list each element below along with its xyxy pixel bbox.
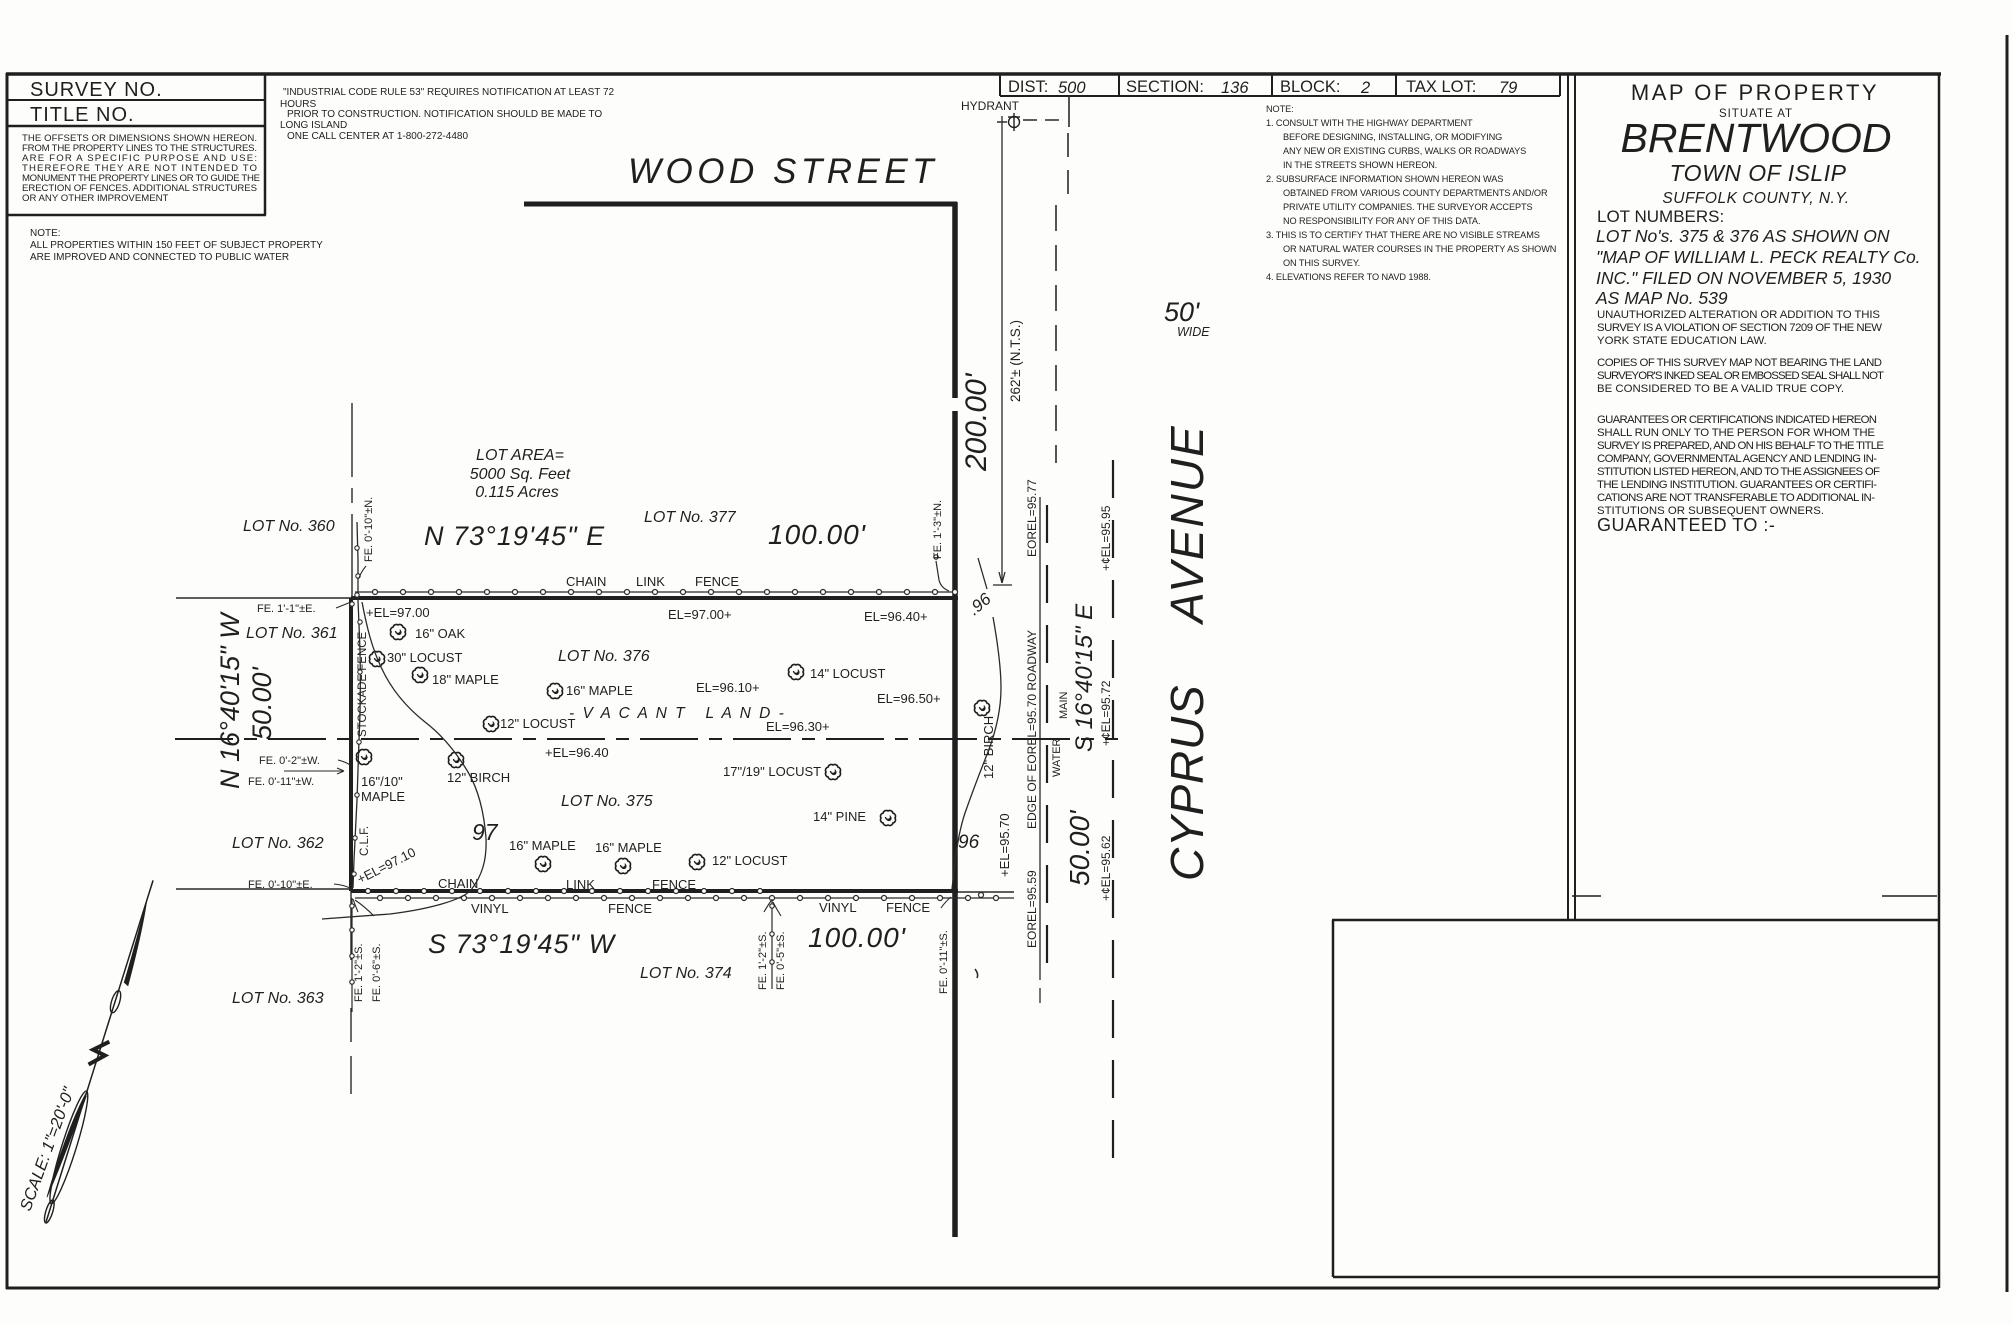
svg-text:FE. 0'-10"±N.: FE. 0'-10"±N. [363,497,375,562]
svg-text:MAIN: MAIN [1058,691,1070,719]
svg-text:14" LOCUST: 14" LOCUST [810,666,885,681]
svg-text:SUFFOLK COUNTY, N.Y.: SUFFOLK COUNTY, N.Y. [1662,190,1849,207]
svg-text:12" LOCUST: 12" LOCUST [500,716,575,731]
svg-text:17"/19" LOCUST: 17"/19" LOCUST [723,764,821,779]
svg-text:WATER: WATER [1051,738,1063,777]
svg-text:YORK STATE EDUCATION LAW.: YORK STATE EDUCATION LAW. [1597,335,1767,347]
svg-text:EL=96.50+: EL=96.50+ [877,691,941,706]
svg-text:79: 79 [1499,79,1517,97]
svg-text:100.00': 100.00' [808,922,907,953]
svg-text:PRIVATE UTILITY COMPANIES. THE: PRIVATE UTILITY COMPANIES. THE SURVEYOR … [1283,202,1533,212]
svg-text:ON THIS SURVEY.: ON THIS SURVEY. [1283,258,1360,268]
svg-text:+¢EL=95.72: +¢EL=95.72 [1099,680,1113,746]
svg-text:262'± (N.T.S.): 262'± (N.T.S.) [1008,320,1023,402]
svg-text:GUARANTEED TO :-: GUARANTEED TO :- [1597,515,1775,535]
svg-text:3. THIS IS TO CERTIFY THAT THE: 3. THIS IS TO CERTIFY THAT THERE ARE NO … [1266,230,1540,240]
svg-text:16" MAPLE: 16" MAPLE [509,838,576,853]
svg-text:FENCE: FENCE [608,901,652,916]
svg-text:- V A C A N T L A N D -: - V A C A N T L A N D - [569,705,786,722]
svg-text:FE. 0'-11"±S.: FE. 0'-11"±S. [938,930,950,994]
svg-text:97: 97 [472,819,499,845]
svg-text:ARE IMPROVED AND CONNECTED TO: ARE IMPROVED AND CONNECTED TO PUBLIC WAT… [30,252,289,263]
svg-text:16" OAK: 16" OAK [415,626,465,641]
svg-text:LINK: LINK [636,574,665,589]
svg-text:LOT No. 362: LOT No. 362 [232,835,324,852]
svg-text:FE. 1'-2"±S.: FE. 1'-2"±S. [757,931,769,990]
svg-text:MAPLE: MAPLE [361,789,405,804]
svg-text:SECTION:: SECTION: [1126,78,1204,96]
svg-text:IN THE STREETS SHOWN HEREON.: IN THE STREETS SHOWN HEREON. [1283,160,1437,170]
svg-text:S 16°40'15" E: S 16°40'15" E [1071,603,1098,752]
svg-text:SURVEY IS A VIOLATION OF SECTI: SURVEY IS A VIOLATION OF SECTION 7209 OF… [1597,322,1882,334]
svg-text:FENCE: FENCE [695,574,739,589]
svg-text:STOCKADE FENCE: STOCKADE FENCE [357,631,369,737]
svg-text:MAP OF PROPERTY: MAP OF PROPERTY [1631,80,1879,105]
svg-text:CATIONS ARE NOT TRANSFERABLE T: CATIONS ARE NOT TRANSFERABLE TO ADDITION… [1597,492,1875,504]
svg-text:S 73°19'45" W: S 73°19'45" W [428,929,617,959]
svg-text:EOREL=95.77: EOREL=95.77 [1025,479,1039,557]
svg-text:.96: .96 [964,589,995,619]
svg-text:2: 2 [1360,79,1370,97]
svg-text:NOTE:: NOTE: [1266,104,1294,114]
svg-text:ALL PROPERTIES WITHIN 150 FEET: ALL PROPERTIES WITHIN 150 FEET OF SUBJEC… [30,240,323,251]
svg-text:AS MAP No. 539: AS MAP No. 539 [1595,288,1728,308]
svg-text:UNAUTHORIZED ALTERATION OR ADD: UNAUTHORIZED ALTERATION OR ADDITION TO T… [1597,309,1880,321]
svg-text:1. CONSULT WITH THE HIGHWAY DE: 1. CONSULT WITH THE HIGHWAY DEPARTMENT [1266,118,1473,128]
svg-text:BLOCK:: BLOCK: [1280,78,1341,96]
svg-text:CYPRUS: CYPRUS [1161,684,1213,881]
svg-text:96: 96 [958,832,980,853]
svg-text:TOWN OF ISLIP: TOWN OF ISLIP [1670,160,1847,186]
svg-text:2. SUBSURFACE INFORMATION SHOW: 2. SUBSURFACE INFORMATION SHOWN HEREON W… [1266,174,1503,184]
svg-text:0.115 Acres: 0.115 Acres [475,484,559,501]
svg-text:12" BIRCH: 12" BIRCH [981,716,996,779]
svg-text:SURVEY IS PREPARED, AND ON HIS: SURVEY IS PREPARED, AND ON HIS BEHALF TO… [1597,440,1884,452]
svg-text:FE. 0'-2"±W.: FE. 0'-2"±W. [259,755,320,767]
svg-text:EL=96.30+: EL=96.30+ [766,719,830,734]
svg-text:SURVEY NO.: SURVEY NO. [30,79,163,101]
svg-text:TAX LOT:: TAX LOT: [1406,78,1476,96]
svg-text:ANY NEW OR EXISTING CURBS, WAL: ANY NEW OR EXISTING CURBS, WALKS OR ROAD… [1283,146,1526,156]
svg-text:INC." FILED ON NOVEMBER 5, 193: INC." FILED ON NOVEMBER 5, 1930 [1596,268,1891,288]
svg-text:DIST:: DIST: [1008,78,1048,96]
svg-text:+¢EL=95.95: +¢EL=95.95 [1099,505,1113,571]
svg-text:FE. 0'-6"±S.: FE. 0'-6"±S. [371,943,383,1002]
svg-text:16" MAPLE: 16" MAPLE [595,840,662,855]
svg-text:PRIOR TO CONSTRUCTION. NOTIFIC: PRIOR TO CONSTRUCTION. NOTIFICATION SHOU… [287,109,602,120]
svg-text:WIDE: WIDE [1177,325,1210,339]
svg-text:LOT No. 363: LOT No. 363 [232,990,324,1007]
svg-text:EL=96.10+: EL=96.10+ [696,680,760,695]
svg-text:LOT No. 375: LOT No. 375 [561,793,653,810]
svg-text:LOT No's. 375 & 376 AS SHOWN O: LOT No's. 375 & 376 AS SHOWN ON [1596,226,1890,246]
svg-text:FE. 0'-5"±S.: FE. 0'-5"±S. [775,931,787,990]
svg-text:12" BIRCH: 12" BIRCH [447,770,510,785]
svg-text:FE. 0'-11"±W.: FE. 0'-11"±W. [248,776,314,788]
svg-text:12" LOCUST: 12" LOCUST [712,853,787,868]
svg-text:STITUTION LISTED HEREON, AND: STITUTION LISTED HEREON, AND TO THE ASSI… [1597,466,1880,478]
svg-text:FE. 1'-3"±N.: FE. 1'-3"±N. [932,500,944,559]
svg-text:LOT No. 361: LOT No. 361 [246,625,338,642]
svg-text:5000 Sq. Feet: 5000 Sq. Feet [470,466,571,483]
svg-text:LOT NUMBERS:: LOT NUMBERS: [1597,207,1724,226]
svg-text:ONE CALL CENTER AT 1-800-272-4: ONE CALL CENTER AT 1-800-272-4480 [287,131,468,142]
svg-text:"MAP OF WILLIAM L. PECK REALTY: "MAP OF WILLIAM L. PECK REALTY Co. [1596,247,1921,267]
svg-text:COPIES OF THIS SURVEY MAP NOT: COPIES OF THIS SURVEY MAP NOT BEARING TH… [1597,357,1882,369]
svg-text:LONG ISLAND: LONG ISLAND [280,120,347,131]
svg-text:LOT No. 360: LOT No. 360 [243,518,335,535]
svg-text:50.00': 50.00' [247,666,277,740]
svg-text:+EL=96.40: +EL=96.40 [545,745,609,760]
svg-text:LINK: LINK [566,877,595,892]
svg-text:136: 136 [1221,79,1249,97]
svg-text:LOT No. 374: LOT No. 374 [640,965,732,982]
svg-text:16"/10": 16"/10" [361,774,403,789]
svg-text:+¢EL=95.62: +¢EL=95.62 [1099,835,1113,901]
svg-text:FE. 1'-1"±E.: FE. 1'-1"±E. [257,603,316,615]
svg-text:500: 500 [1058,79,1086,97]
svg-text:LOT No. 377: LOT No. 377 [644,509,737,526]
svg-text:N 16°40'15" W: N 16°40'15" W [215,611,245,789]
svg-text:EOREL=95.59: EOREL=95.59 [1025,870,1039,948]
svg-text:OR ANY OTHER IMPROVEMENT: OR ANY OTHER IMPROVEMENT [22,193,169,204]
svg-text:VINYL: VINYL [471,901,509,916]
svg-text:16" MAPLE: 16" MAPLE [566,683,633,698]
svg-text:NOTE:: NOTE: [30,228,61,239]
svg-text:BRENTWOOD: BRENTWOOD [1620,115,1891,161]
svg-text:C.L.F.: C.L.F. [359,826,371,856]
svg-text:LOT AREA=: LOT AREA= [476,447,564,464]
svg-text:SHALL RUN ONLY TO THE PERSON F: SHALL RUN ONLY TO THE PERSON FOR WHOM TH… [1597,427,1875,439]
svg-text:+EL=97.00: +EL=97.00 [366,605,430,620]
svg-text:14" PINE: 14" PINE [813,809,866,824]
svg-text:OBTAINED FROM VARIOUS COUNTY D: OBTAINED FROM VARIOUS COUNTY DEPARTMENTS… [1283,188,1548,198]
svg-text:EL=96.40+: EL=96.40+ [864,609,928,624]
svg-text:WOOD STREET: WOOD STREET [628,152,938,191]
svg-text:50.00': 50.00' [1064,809,1095,886]
svg-text:VINYL: VINYL [819,900,857,915]
svg-text:SURVEYOR'S INKED SEAL OR EMBOS: SURVEYOR'S INKED SEAL OR EMBOSSED SEAL S… [1597,370,1884,382]
svg-text:HYDRANT: HYDRANT [961,99,1020,113]
svg-text:100.00': 100.00' [768,519,867,550]
svg-text:COMPANY, GOVERNMENTAL AGENCY A: COMPANY, GOVERNMENTAL AGENCY AND LENDING… [1597,453,1877,465]
svg-text:FENCE: FENCE [652,877,696,892]
svg-text:30" LOCUST: 30" LOCUST [387,650,462,665]
svg-text:200.00': 200.00' [960,372,993,472]
svg-text:LOT No. 376: LOT No. 376 [558,648,650,665]
svg-text:OR NATURAL WATER COURSES IN TH: OR NATURAL WATER COURSES IN THE PROPERTY… [1283,244,1556,254]
svg-text:4. ELEVATIONS REFER TO NAVD 19: 4. ELEVATIONS REFER TO NAVD 1988. [1266,272,1431,282]
svg-text:N 73°19'45" E: N 73°19'45" E [424,521,605,551]
svg-text:FENCE: FENCE [886,900,930,915]
svg-text:"INDUSTRIAL CODE RULE 53" REQU: "INDUSTRIAL CODE RULE 53" REQUIRES NOTIF… [283,87,615,98]
svg-text:BE CONSIDERED TO BE A VALID TR: BE CONSIDERED TO BE A VALID TRUE COPY. [1597,383,1844,395]
svg-text:FE. 1'-2"±S.: FE. 1'-2"±S. [353,943,365,1002]
svg-text:GUARANTEES OR CERTIFICATIONS I: GUARANTEES OR CERTIFICATIONS INDICATED H… [1597,414,1877,426]
svg-text:AVENUE: AVENUE [1161,424,1213,626]
svg-text:THE LENDING INSTITUTION. GUARA: THE LENDING INSTITUTION. GUARANTEES OR C… [1597,479,1877,491]
svg-text:FE. 0'-10"±E.: FE. 0'-10"±E. [248,879,313,891]
svg-text:BEFORE DESIGNING, INSTALLING,: BEFORE DESIGNING, INSTALLING, OR MODIFYI… [1283,132,1502,142]
svg-text:TITLE NO.: TITLE NO. [30,104,135,126]
svg-text:CHAIN: CHAIN [566,574,606,589]
svg-text:+EL=95.70: +EL=95.70 [997,813,1012,877]
svg-text:NO RESPONSIBILITY FOR ANY OF T: NO RESPONSIBILITY FOR ANY OF THIS DATA. [1283,216,1480,226]
svg-text:50': 50' [1164,297,1200,327]
svg-text:18" MAPLE: 18" MAPLE [432,672,499,687]
svg-text:EDGE OF EOREL=95.70 ROADWAY: EDGE OF EOREL=95.70 ROADWAY [1025,630,1039,829]
svg-text:EL=97.00+: EL=97.00+ [668,607,732,622]
